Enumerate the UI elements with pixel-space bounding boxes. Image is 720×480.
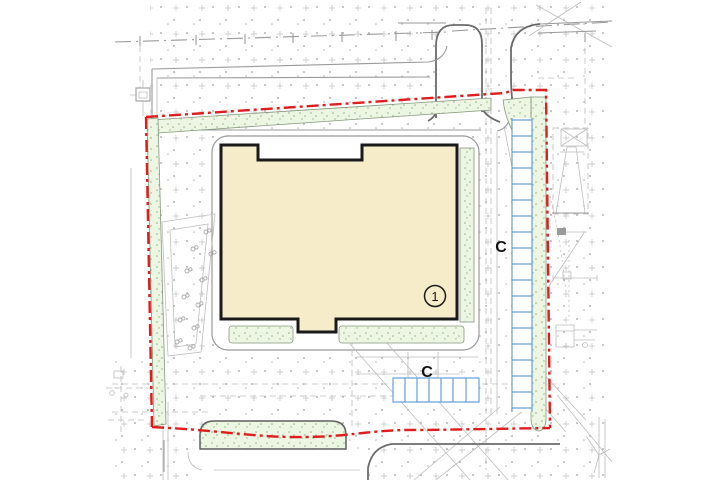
- south-building-roof: [196, 449, 367, 480]
- parking-zone-label-right: C: [495, 239, 507, 256]
- site-plan-canvas: 1 C C: [0, 0, 720, 480]
- green-strip-east: [531, 97, 546, 431]
- parking-row-south: [393, 378, 479, 402]
- site-plan-drawing: 1 C C: [0, 0, 720, 480]
- green-strip-building-south-left: [229, 326, 293, 343]
- green-strip-building-east: [460, 148, 474, 322]
- green-island-south: [200, 421, 346, 449]
- green-strip-building-south-right: [339, 326, 464, 343]
- building-number: 1: [431, 289, 438, 304]
- building-1: 1: [221, 145, 457, 332]
- parking-zone-label-bottom: C: [421, 364, 433, 381]
- parking-column-east: [512, 118, 532, 412]
